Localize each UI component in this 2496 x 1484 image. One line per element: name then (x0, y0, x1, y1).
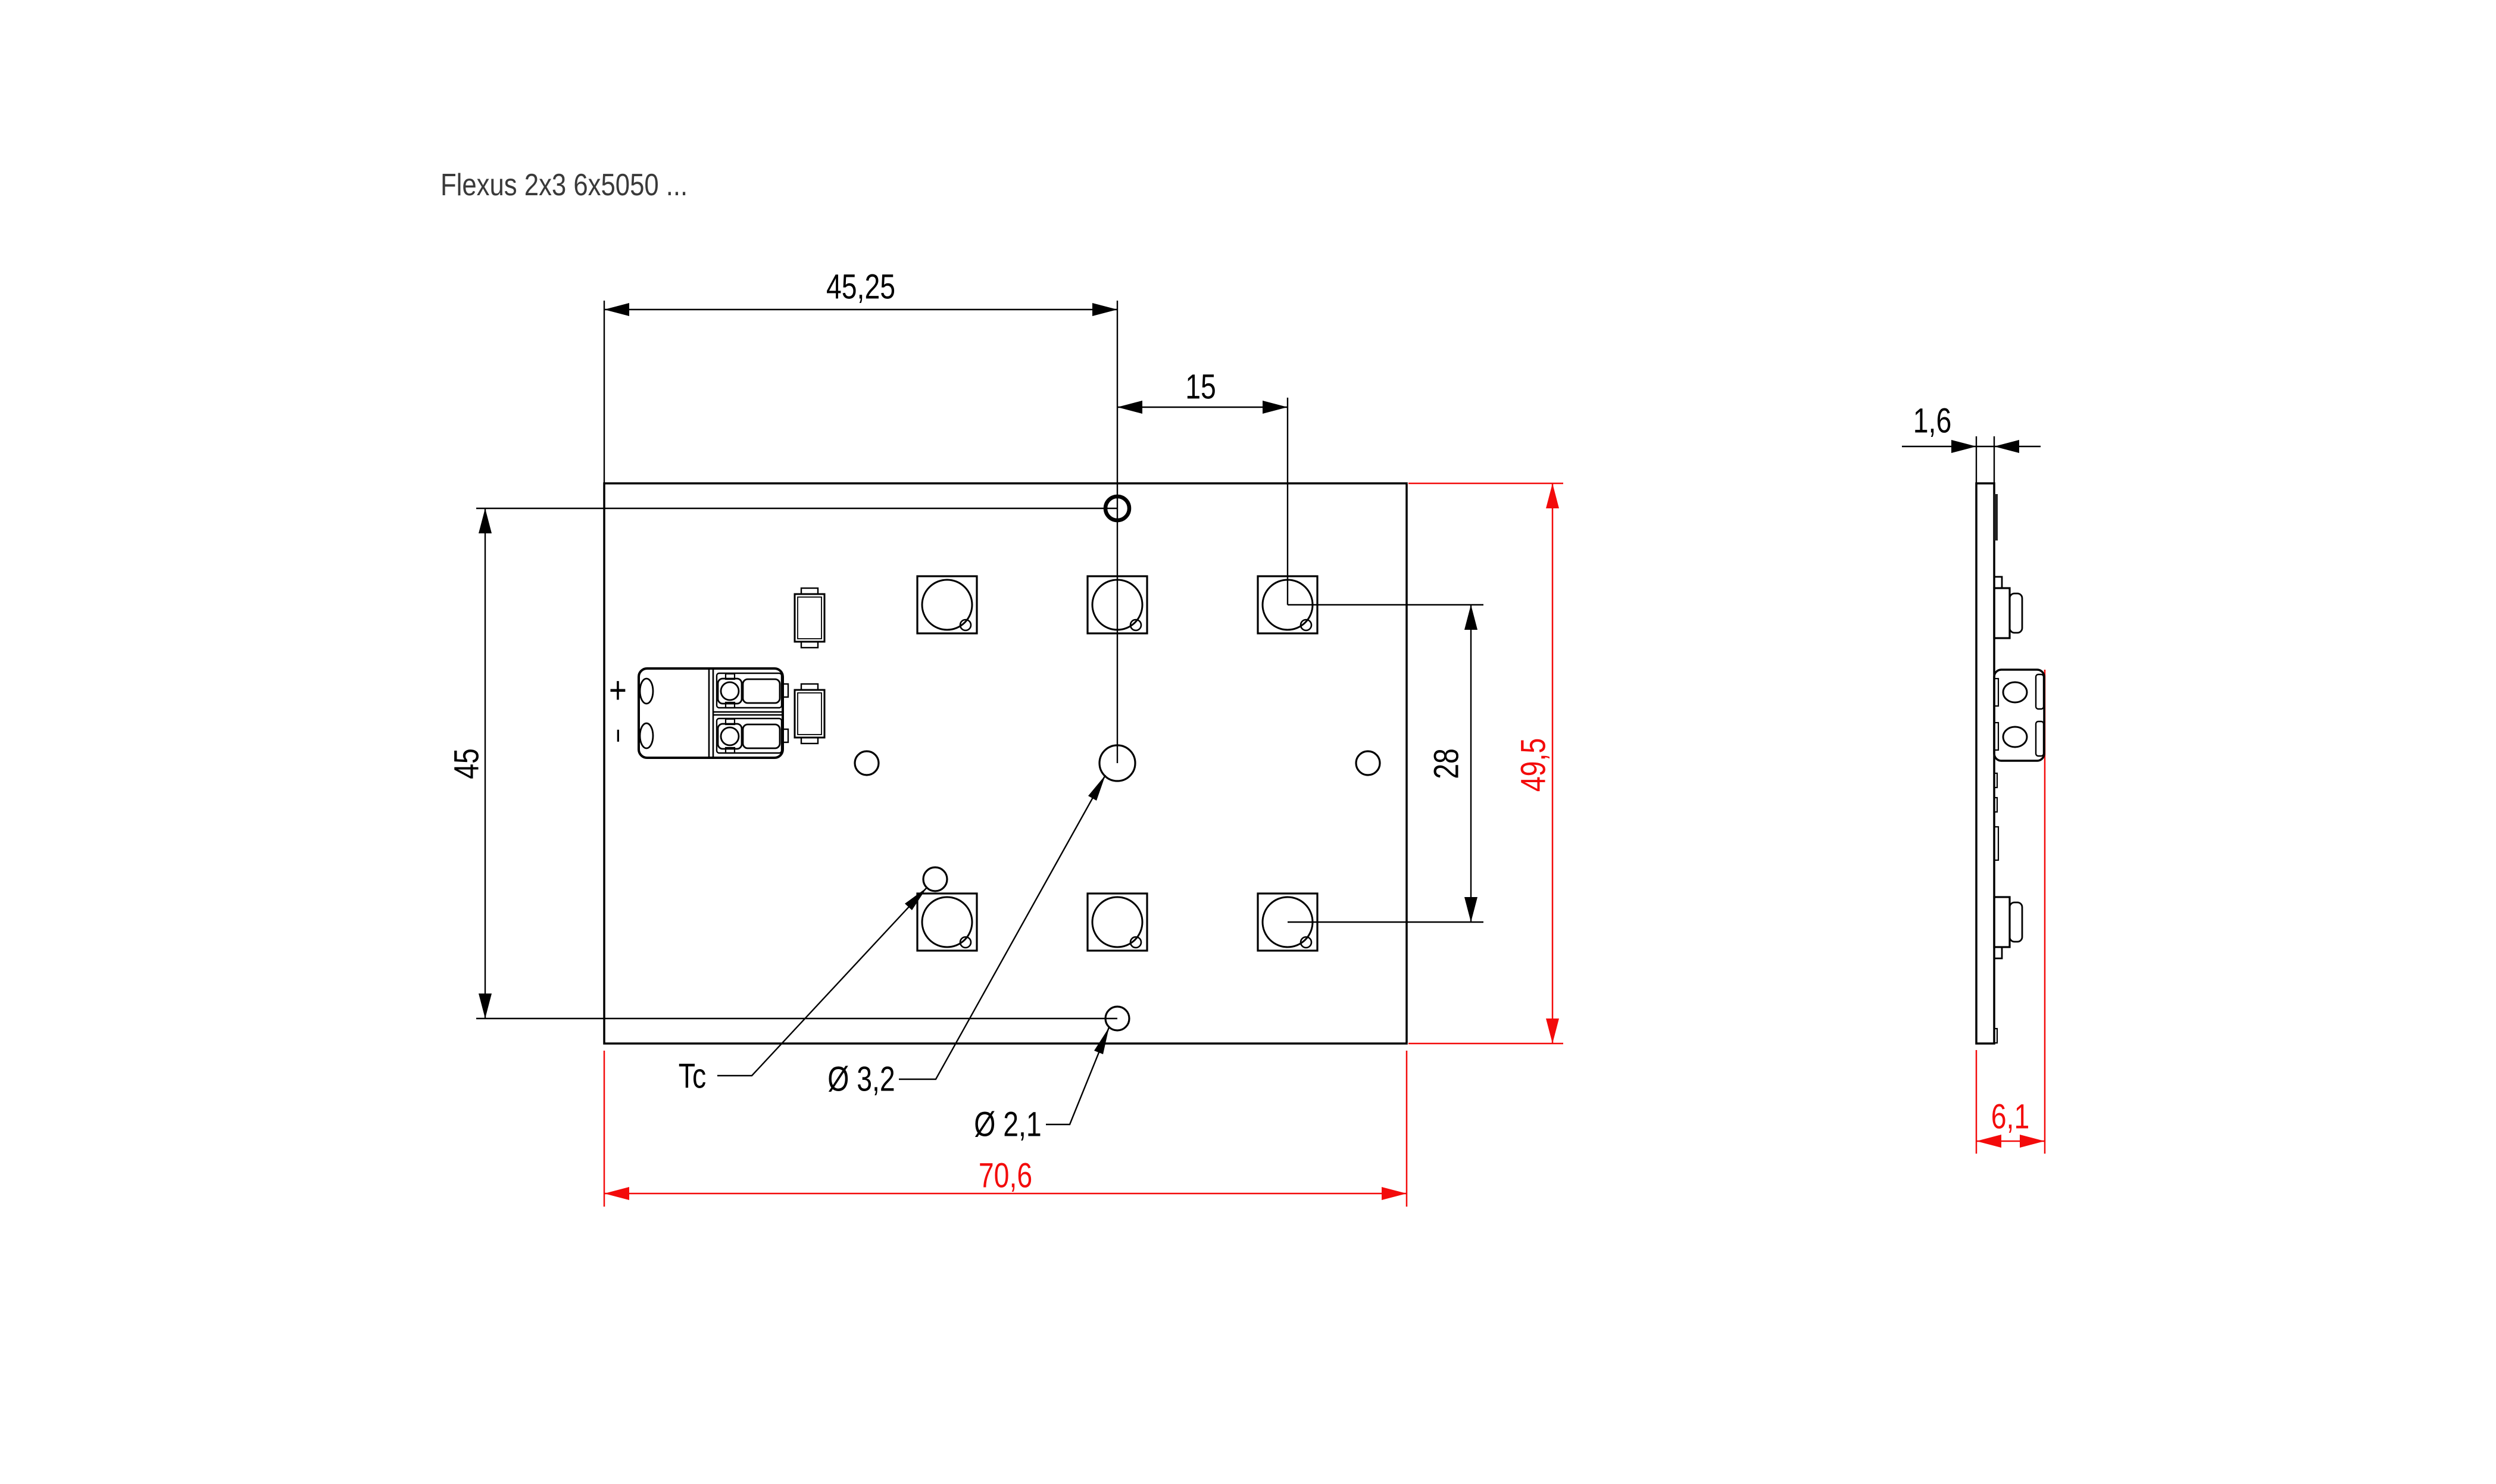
dim-label-45: 45 (447, 748, 487, 779)
led-5050-bottom-left (917, 893, 977, 951)
screw-bottom (721, 727, 739, 745)
dim-45 (476, 508, 1117, 1019)
via-right (1356, 751, 1380, 775)
label-tc: Tc (679, 1057, 706, 1096)
side-view (1902, 436, 2044, 1044)
led-side-profile-bottom (1994, 897, 2022, 958)
pcb-board-outline (604, 483, 1407, 1044)
dim-label-6-1: 6,1 (1991, 1097, 2030, 1137)
terminal-connector (639, 668, 788, 758)
leader-dia-3-2 (899, 775, 1105, 1079)
pad-strip (1994, 798, 1997, 812)
screw-top (721, 682, 739, 700)
dim-45-25 (604, 301, 1117, 763)
smd-component-lower (795, 684, 824, 743)
dim-1-6 (1902, 436, 2041, 483)
via-left (855, 751, 879, 775)
led-5050-top-left (917, 576, 977, 633)
wire-entry-bottom (640, 723, 653, 748)
red-dimensions (604, 483, 2045, 1207)
dim-label-49-5: 49,5 (1514, 738, 1554, 792)
front-view (604, 483, 1407, 1044)
led-5050-bottom-middle (1088, 893, 1147, 951)
label-dia-2-1: Ø 2,1 (974, 1105, 1041, 1145)
lever-top (743, 679, 780, 703)
led-side-profile-top (1994, 577, 2022, 638)
solder-strip-top (1994, 494, 1998, 541)
connector-side-profile (1994, 670, 2044, 761)
dim-label-70-6: 70,6 (979, 1156, 1032, 1196)
black-dimensions (476, 301, 1483, 1124)
smd-component-upper (795, 588, 824, 648)
dim-label-28: 28 (1427, 748, 1467, 779)
pcb-side-profile (1976, 483, 1994, 1044)
dim-15 (1117, 398, 1288, 605)
polarity-minus-symbol: − (602, 729, 635, 743)
technical-drawing-page: Flexus 2x3 6x5050 ... 45,25 15 45 28 49,… (0, 0, 2496, 1484)
pad-strip (1994, 1029, 1997, 1043)
drawing-title: Flexus 2x3 6x5050 ... (441, 167, 688, 203)
leader-dia-2-1 (1046, 1027, 1109, 1124)
dim-label-45-25: 45,25 (826, 267, 895, 307)
lever-bottom (743, 724, 780, 748)
pad-strip (1994, 827, 1998, 860)
dim-label-1-6: 1,6 (1913, 401, 1952, 441)
wire-entry-top (640, 679, 653, 704)
leader-tc (717, 888, 927, 1076)
label-dia-3-2: Ø 3,2 (827, 1060, 895, 1099)
pad-strip (1994, 773, 1997, 788)
dim-label-15: 15 (1185, 367, 1216, 407)
cad-drawing (0, 0, 2496, 1484)
polarity-plus-symbol: + (609, 668, 627, 712)
